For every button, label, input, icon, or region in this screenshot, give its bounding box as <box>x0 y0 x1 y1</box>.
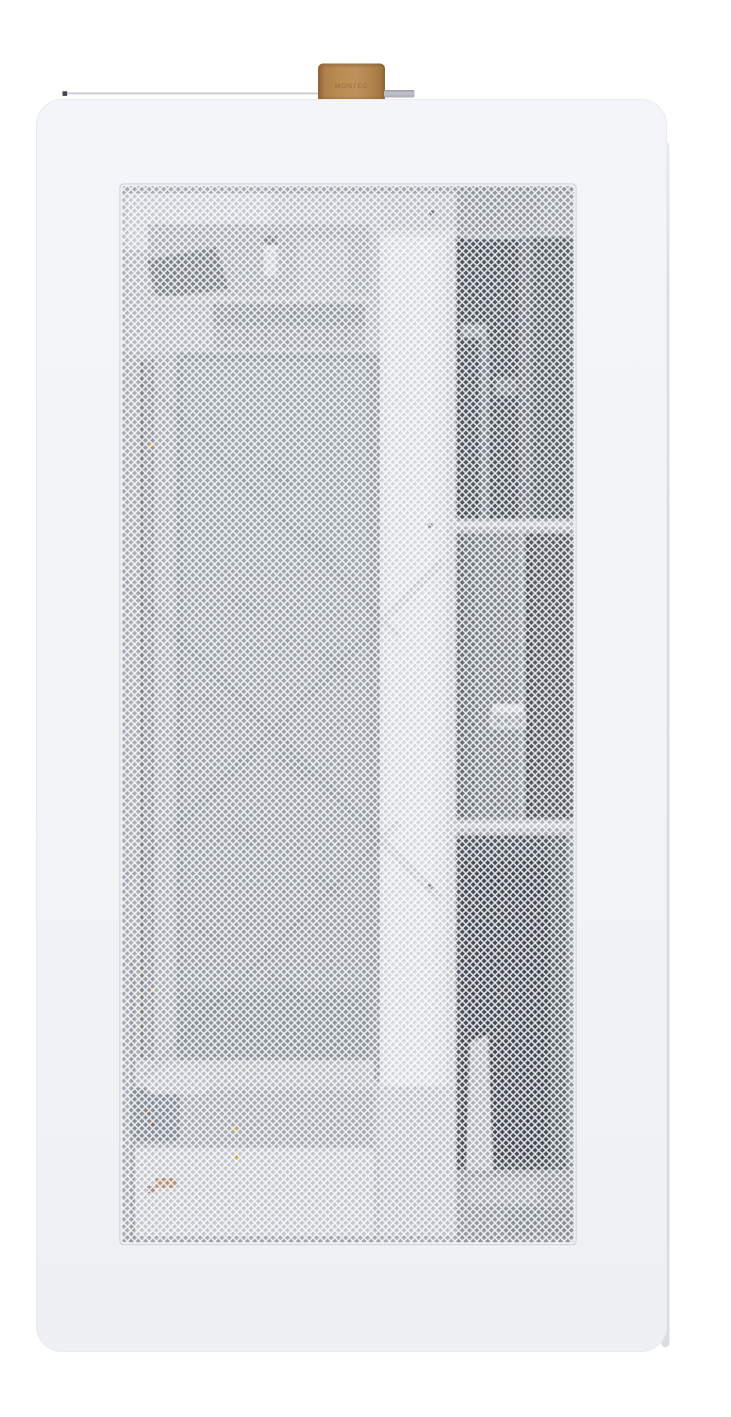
svg-text:MONTEC: MONTEC <box>335 83 368 90</box>
